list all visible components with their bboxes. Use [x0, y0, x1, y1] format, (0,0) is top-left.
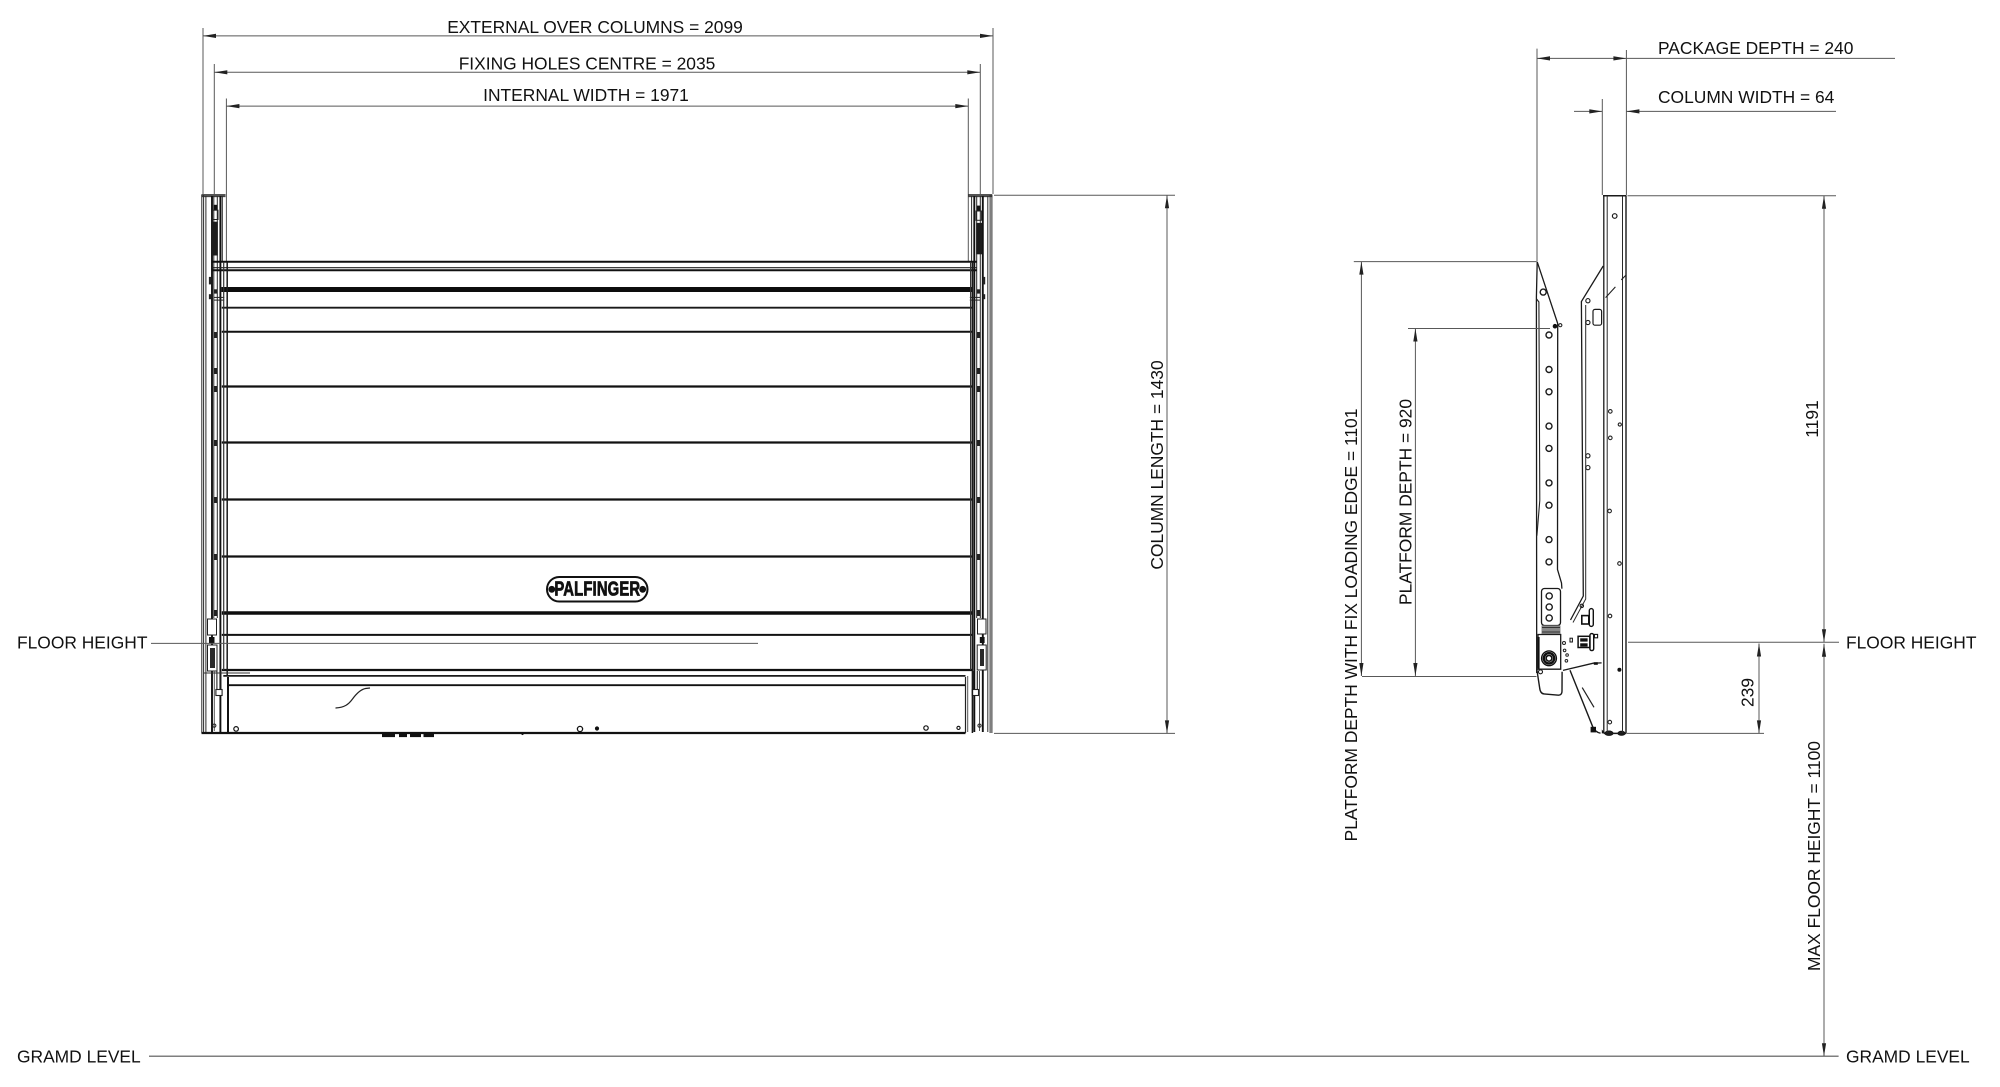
svg-text:FLOOR HEIGHT: FLOOR HEIGHT	[17, 633, 148, 653]
svg-text:MAX FLOOR HEIGHT = 1100: MAX FLOOR HEIGHT = 1100	[1804, 741, 1824, 971]
svg-text:EXTERNAL OVER COLUMNS = 2099: EXTERNAL OVER COLUMNS = 2099	[447, 17, 743, 37]
svg-text:PLATFORM DEPTH = 920: PLATFORM DEPTH = 920	[1396, 399, 1416, 605]
svg-text:1191: 1191	[1802, 400, 1822, 437]
svg-text:GRAMD LEVEL: GRAMD LEVEL	[1846, 1047, 1970, 1067]
svg-text:239: 239	[1738, 678, 1758, 707]
svg-text:PALFINGER: PALFINGER	[554, 577, 640, 600]
svg-text:FIXING HOLES CENTRE = 2035: FIXING HOLES CENTRE = 2035	[459, 53, 716, 73]
svg-text:COLUMN LENGTH = 1430: COLUMN LENGTH = 1430	[1147, 360, 1167, 569]
svg-text:COLUMN WIDTH = 64: COLUMN WIDTH = 64	[1658, 87, 1835, 107]
svg-text:INTERNAL WIDTH = 1971: INTERNAL WIDTH = 1971	[483, 85, 689, 105]
svg-text:FLOOR HEIGHT: FLOOR HEIGHT	[1846, 633, 1977, 653]
svg-text:PLATFORM DEPTH WITH FIX LOADIN: PLATFORM DEPTH WITH FIX LOADING EDGE = 1…	[1341, 409, 1361, 842]
svg-text:PACKAGE DEPTH = 240: PACKAGE DEPTH = 240	[1658, 38, 1853, 58]
svg-text:GRAMD LEVEL: GRAMD LEVEL	[17, 1047, 141, 1067]
